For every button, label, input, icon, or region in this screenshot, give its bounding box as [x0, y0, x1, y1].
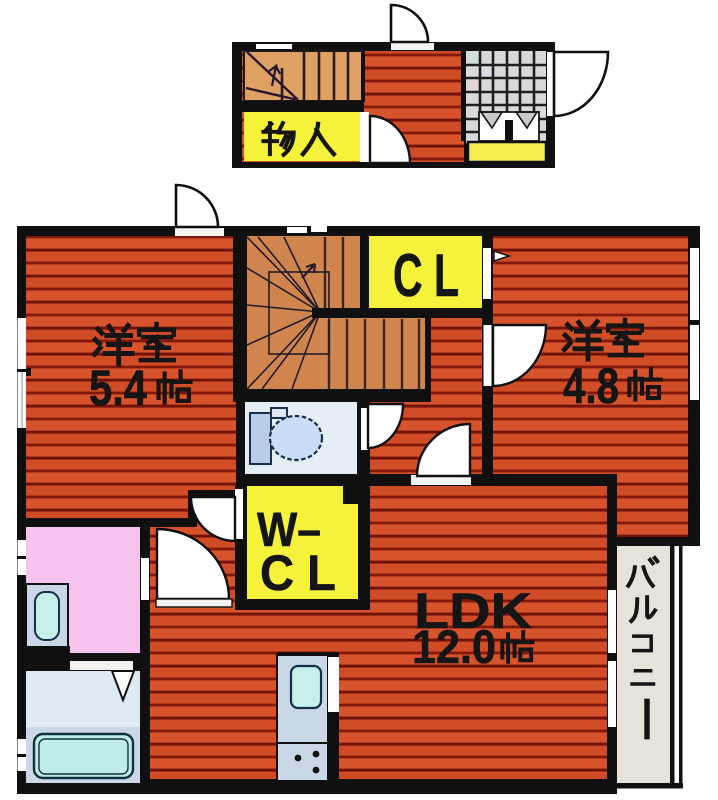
- svg-text:C L: C L: [393, 242, 459, 309]
- svg-text:5.4: 5.4: [89, 360, 147, 416]
- svg-text:4.8: 4.8: [563, 358, 619, 414]
- svg-text:12.0: 12.0: [412, 620, 496, 673]
- svg-text:C L: C L: [260, 545, 336, 601]
